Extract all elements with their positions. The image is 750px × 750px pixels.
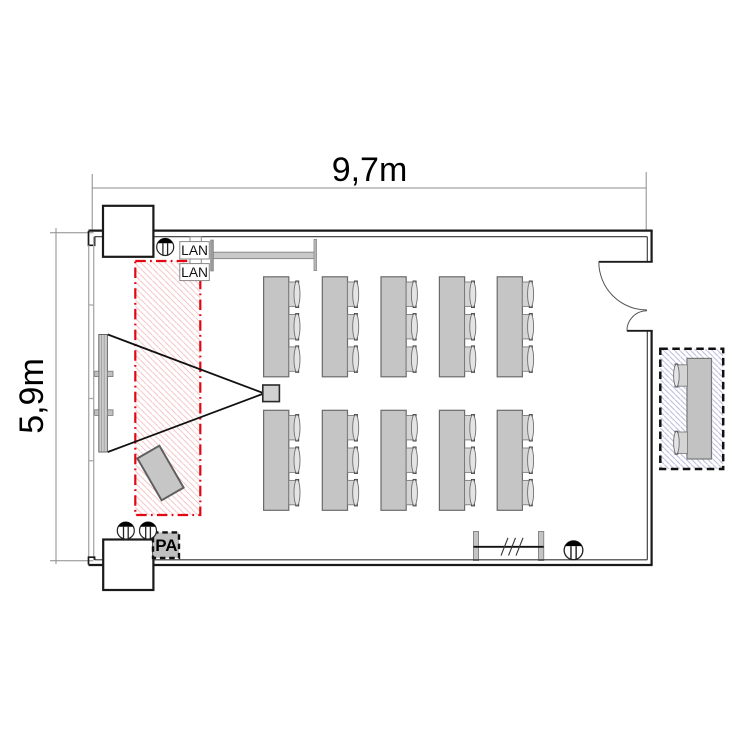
svg-text:PA: PA [155, 536, 177, 555]
svg-text:LAN: LAN [181, 265, 208, 280]
svg-text:5,9m: 5,9m [13, 358, 51, 434]
svg-text:9,7m: 9,7m [332, 151, 408, 189]
svg-text:LAN: LAN [181, 243, 208, 258]
